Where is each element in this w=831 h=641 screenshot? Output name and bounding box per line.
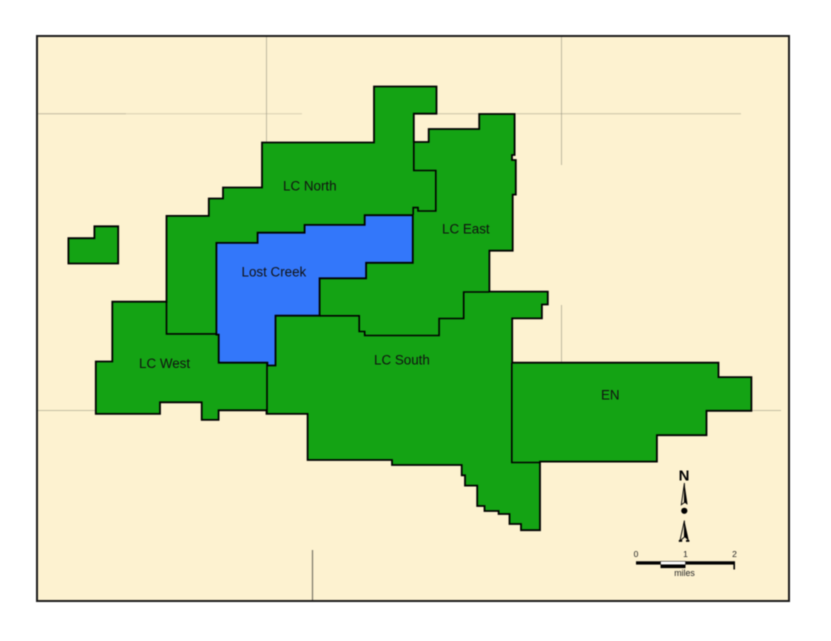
svg-text:LC East: LC East — [442, 222, 490, 237]
svg-text:2: 2 — [732, 549, 737, 559]
svg-text:LC West: LC West — [139, 356, 190, 371]
svg-text:N: N — [679, 468, 690, 485]
svg-text:0: 0 — [634, 549, 639, 559]
svg-text:miles: miles — [674, 568, 695, 578]
svg-text:EN: EN — [601, 388, 620, 403]
svg-text:1: 1 — [683, 549, 688, 559]
svg-text:LC North: LC North — [283, 179, 337, 194]
svg-text:Lost Creek: Lost Creek — [242, 265, 307, 280]
svg-text:LC South: LC South — [374, 353, 430, 368]
